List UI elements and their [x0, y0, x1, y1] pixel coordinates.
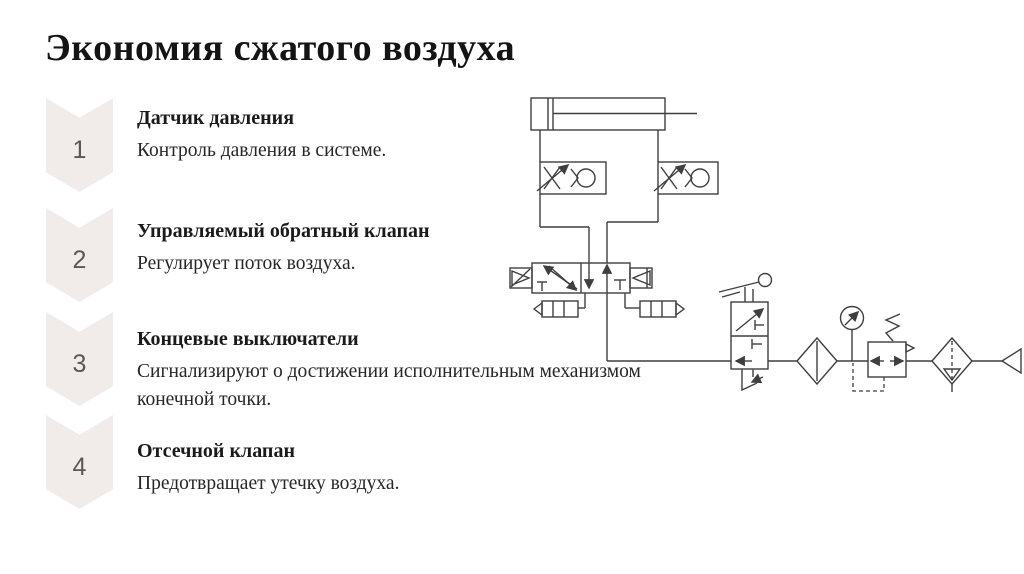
pneumatic-diagram [0, 0, 1024, 574]
double-acting-cylinder [531, 98, 697, 162]
exhaust-silencer-left [534, 293, 585, 317]
pilot-right [630, 268, 652, 288]
lever-shutoff-valve [719, 274, 772, 391]
air-filter [797, 338, 837, 384]
exhaust-silencer-right [625, 293, 684, 317]
pilot-left [510, 268, 532, 288]
pilot-operated-5-2-directional-valve [510, 263, 684, 317]
one-way-flow-control-valve-right [607, 162, 718, 263]
supply-line [607, 293, 1002, 361]
pressure-regulator [853, 314, 914, 391]
pressure-gauge [841, 307, 864, 362]
compressed-air-source [1002, 349, 1021, 373]
one-way-flow-control-valve-left [537, 162, 606, 263]
filter-water-separator [932, 338, 972, 392]
